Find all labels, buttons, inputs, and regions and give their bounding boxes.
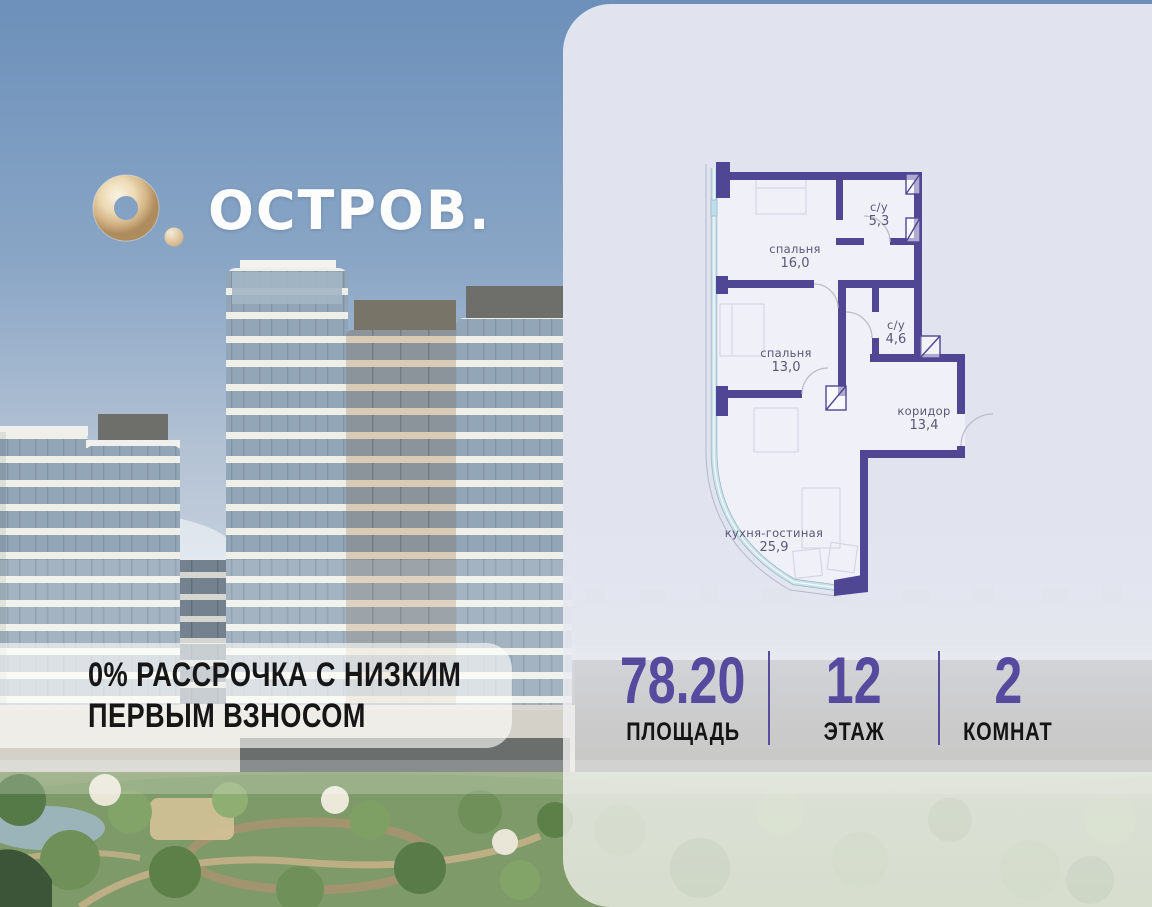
stat-floor-value: 12 bbox=[826, 649, 882, 712]
stat-rooms-value: 2 bbox=[994, 649, 1022, 712]
stat-area-label: ПЛОЩАДЬ bbox=[626, 718, 740, 747]
room-label-corridor: коридор 13,4 bbox=[897, 404, 950, 435]
room-label-bath-2: с/у 4,6 bbox=[886, 318, 907, 349]
floorplan-svg bbox=[698, 158, 1008, 633]
stats-row: 78.20 ПЛОЩАДЬ 12 ЭТАЖ 2 КОМНАТ bbox=[598, 642, 1076, 754]
stat-floor-label: ЭТАЖ bbox=[824, 718, 885, 747]
stat-area-value: 78.20 bbox=[620, 649, 746, 712]
room-label-bath-1: с/у 5,3 bbox=[869, 200, 890, 231]
promo-line-2: ПЕРВЫМ ВЗНОСОМ bbox=[88, 696, 427, 737]
floorplan: спальня 16,0 с/у 5,3 спальня 13,0 с/у 4,… bbox=[698, 158, 1008, 633]
brand-logo: ОСТРОВ. bbox=[92, 158, 492, 262]
listing-card: ОСТРОВ. 0% РАССРОЧКА С НИЗКИМ ПЕРВЫМ ВЗН… bbox=[0, 0, 1152, 907]
stat-rooms: 2 КОМНАТ bbox=[940, 649, 1076, 747]
stat-area: 78.20 ПЛОЩАДЬ bbox=[598, 649, 768, 747]
apartment-panel: спальня 16,0 с/у 5,3 спальня 13,0 с/у 4,… bbox=[563, 4, 1152, 907]
window-marker bbox=[711, 200, 717, 216]
promo-line-1: 0% РАССРОЧКА С НИЗКИМ bbox=[88, 655, 427, 696]
stat-rooms-label: КОМНАТ bbox=[963, 718, 1052, 747]
room-label-kitchen-living: кухня-гостиная 25,9 bbox=[725, 526, 823, 557]
room-label-bedroom-2: спальня 13,0 bbox=[760, 346, 812, 377]
stat-floor: 12 ЭТАЖ bbox=[770, 649, 938, 747]
brand-name: ОСТРОВ. bbox=[208, 179, 492, 242]
torus-logo-icon bbox=[92, 158, 192, 262]
room-label-bedroom-1: спальня 16,0 bbox=[769, 242, 821, 273]
promo-banner: 0% РАССРОЧКА С НИЗКИМ ПЕРВЫМ ВЗНОСОМ bbox=[0, 643, 512, 748]
